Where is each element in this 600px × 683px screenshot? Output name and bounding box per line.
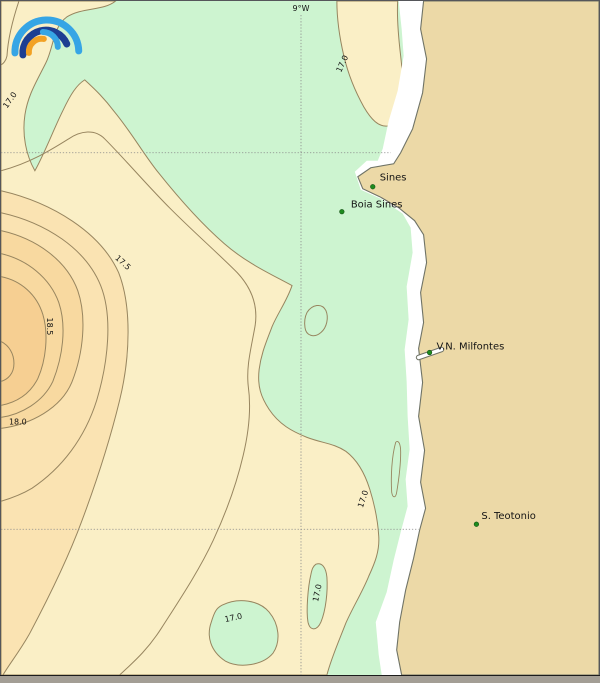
cold-blob-a xyxy=(209,601,278,666)
station-label-vn-milfontes: V.N. Milfontes xyxy=(437,341,505,352)
map-canvas: 9°W 17.0 17.5 18.5 18.0 17.0 17.0 17.0 1… xyxy=(1,1,599,675)
map-frame: 9°W 17.0 17.5 18.5 18.0 17.0 17.0 17.0 1… xyxy=(0,0,600,675)
station-dot-sines xyxy=(370,184,375,189)
station-label-boia-sines: Boia Sines xyxy=(351,200,403,211)
station-dot-boia-sines xyxy=(340,209,345,214)
station-dot-s-teotonio xyxy=(474,522,479,527)
station-label-s-teotonio: S. Teotonio xyxy=(481,511,535,522)
station-label-sines: Sines xyxy=(380,173,407,184)
bottom-frame-bar xyxy=(0,675,600,683)
meridian-label: 9°W xyxy=(293,4,310,13)
station-dot-vn-milfontes xyxy=(427,350,432,355)
contour-label-18-5: 18.5 xyxy=(45,318,54,336)
contour-label-18: 18.0 xyxy=(9,417,27,426)
sst-map-window: 9°W 17.0 17.5 18.5 18.0 17.0 17.0 17.0 1… xyxy=(0,0,600,683)
